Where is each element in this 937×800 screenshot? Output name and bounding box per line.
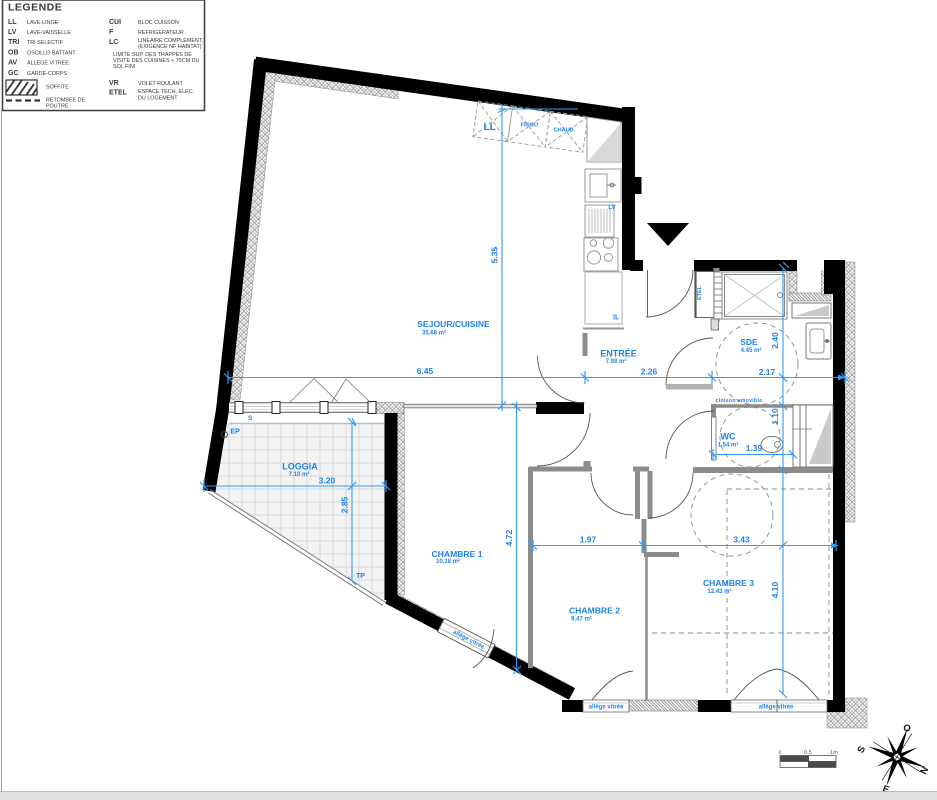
svg-text:2.40: 2.40 [770,332,780,349]
svg-text:ENTRÉE: ENTRÉE [600,349,637,359]
svg-text:1m: 1m [830,750,838,756]
svg-text:12.43 m²: 12.43 m² [707,588,731,595]
svg-text:SOL FINI: SOL FINI [113,64,135,70]
svg-text:35.68 m²: 35.68 m² [422,330,446,337]
svg-text:(EXIGENCE NF HABITAT): (EXIGENCE NF HABITAT) [138,44,202,50]
svg-text:FRIGO: FRIGO [521,123,539,129]
svg-text:1.39: 1.39 [746,443,763,453]
svg-text:CHAMBRE 2: CHAMBRE 2 [569,606,620,616]
svg-text:3.43: 3.43 [733,535,750,545]
svg-text:LL: LL [484,122,496,133]
svg-text:LOGGIA: LOGGIA [282,462,318,472]
svg-text:REFRIGERATEUR: REFRIGERATEUR [138,30,184,36]
svg-text:S: S [248,415,253,422]
svg-text:ESPACE TECH. ELEC.: ESPACE TECH. ELEC. [138,89,194,95]
svg-text:F: F [109,29,114,36]
svg-text:VOLET ROULANT: VOLET ROULANT [138,81,184,87]
svg-text:2.26: 2.26 [641,367,658,377]
svg-text:SDE: SDE [740,337,758,347]
svg-text:DU LOGEMENT: DU LOGEMENT [138,96,178,102]
svg-text:cloison amovible: cloison amovible [716,398,763,404]
svg-text:ETEL: ETEL [697,285,703,300]
svg-text:6.45: 6.45 [417,366,434,376]
svg-text:CHAMBRE 1: CHAMBRE 1 [431,549,482,559]
svg-text:BLOC CUISSON: BLOC CUISSON [138,20,179,26]
svg-text:CHAMBRE 3: CHAMBRE 3 [703,578,754,588]
svg-text:7.10 m²: 7.10 m² [289,471,310,478]
svg-text:TP: TP [356,573,365,580]
svg-text:OSCILLO BATTANT: OSCILLO BATTANT [27,51,76,57]
svg-text:LV: LV [608,205,615,211]
svg-text:4.45 m²: 4.45 m² [741,347,762,354]
svg-text:SOFFITE: SOFFITE [46,85,69,91]
svg-text:ALLEGE VITREE: ALLEGE VITREE [27,61,69,67]
svg-text:VR: VR [109,80,119,87]
svg-text:POUTRE: POUTRE [46,104,69,110]
svg-text:4.10: 4.10 [770,581,780,598]
svg-text:CHAUD.: CHAUD. [554,128,576,134]
svg-text:GC: GC [8,70,19,77]
svg-text:SEJOUR/CUISINE: SEJOUR/CUISINE [417,319,490,329]
svg-text:allège vitrée: allège vitrée [589,705,624,711]
svg-text:3.20: 3.20 [319,476,336,486]
svg-text:2.17: 2.17 [759,367,776,377]
svg-text:TRI: TRI [8,39,19,46]
svg-text:AV: AV [8,60,18,67]
svg-text:LEGENDE: LEGENDE [8,2,62,14]
svg-text:5.35: 5.35 [490,246,500,263]
svg-text:TRI SELECTIF: TRI SELECTIF [27,40,64,46]
svg-text:0.5: 0.5 [804,750,812,756]
svg-text:WC: WC [721,432,736,442]
svg-text:GARDE-CORPS: GARDE-CORPS [27,71,68,77]
svg-text:1.97: 1.97 [580,535,597,545]
svg-text:2.85: 2.85 [340,496,350,513]
svg-text:LV: LV [8,29,17,36]
svg-text:7.98 m²: 7.98 m² [606,358,627,365]
svg-text:allège vitrée: allège vitrée [759,705,794,711]
svg-text:0: 0 [778,750,781,756]
svg-text:LC: LC [109,39,118,46]
svg-text:1.54 m²: 1.54 m² [718,442,739,449]
svg-text:4.72: 4.72 [504,529,514,546]
svg-text:CUI: CUI [109,19,121,26]
svg-text:10.18 m²: 10.18 m² [436,558,460,565]
svg-text:pl: pl [613,314,619,320]
svg-text:LL: LL [8,19,17,26]
svg-text:ETEL: ETEL [109,90,128,97]
svg-text:9.47 m²: 9.47 m² [571,616,592,623]
svg-text:LAVE-VAISSELLE: LAVE-VAISSELLE [27,30,71,36]
svg-text:1.10: 1.10 [770,408,780,425]
svg-text:EP: EP [231,429,241,436]
svg-text:LAVE-LINGE: LAVE-LINGE [27,20,59,26]
svg-text:OB: OB [8,50,19,57]
